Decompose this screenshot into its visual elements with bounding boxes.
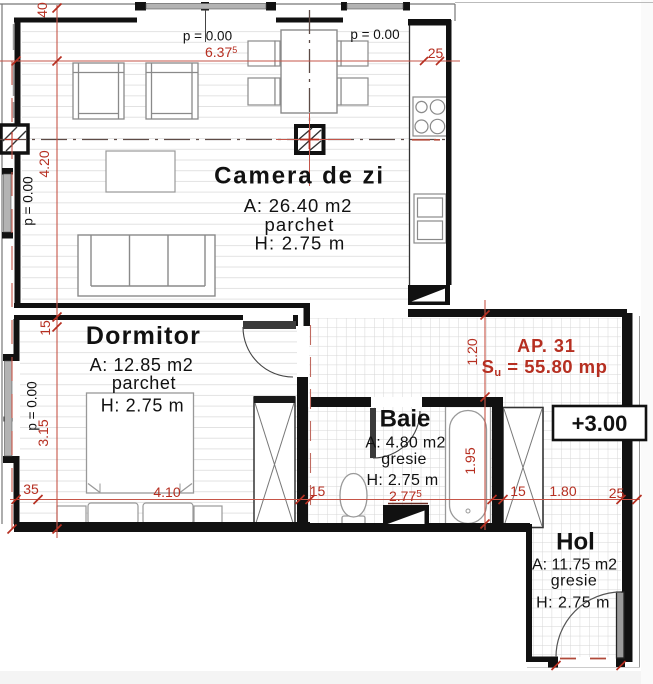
svg-text:4.10: 4.10 [153,484,180,500]
svg-text:35: 35 [23,481,39,497]
svg-text:H: 2.75 m: H: 2.75 m [101,396,184,416]
svg-text:40: 40 [34,2,50,18]
svg-text:A: 12.85 m2: A: 12.85 m2 [90,355,194,375]
svg-text:1.80: 1.80 [549,483,576,499]
svg-text:H: 2.75 m: H: 2.75 m [255,233,346,254]
svg-text:15: 15 [310,483,326,499]
svg-text:1.20: 1.20 [464,338,480,365]
svg-text:p = 0.00: p = 0.00 [350,27,399,42]
svg-text:Camera de zi: Camera de zi [214,163,385,190]
svg-text:25: 25 [428,45,444,61]
svg-text:Dormitor: Dormitor [86,322,201,350]
svg-text:gresie: gresie [381,451,426,468]
svg-text:p = 0.00: p = 0.00 [25,381,40,430]
svg-text:H: 2.75 m: H: 2.75 m [366,472,438,489]
svg-text:p = 0.00: p = 0.00 [21,176,36,225]
svg-text:+3.00: +3.00 [572,411,628,436]
svg-text:Hol: Hol [556,529,595,556]
svg-text:A: 11.75 m2: A: 11.75 m2 [532,557,617,574]
svg-text:A: 4.80 m2: A: 4.80 m2 [365,435,445,452]
svg-text:15: 15 [37,320,53,336]
svg-text:Baie: Baie [380,406,431,433]
svg-text:15: 15 [510,483,526,499]
svg-text:A: 26.40 m2: A: 26.40 m2 [244,195,353,216]
svg-text:H: 2.75 m: H: 2.75 m [536,595,610,612]
svg-text:parchet: parchet [112,373,176,393]
svg-text:4.20: 4.20 [36,150,52,177]
svg-text:AP. 31: AP. 31 [517,336,576,356]
svg-text:p = 0.00: p = 0.00 [183,29,232,44]
svg-text:25: 25 [609,485,625,501]
svg-text:gresie: gresie [551,573,598,590]
svg-text:1.95: 1.95 [462,447,478,474]
